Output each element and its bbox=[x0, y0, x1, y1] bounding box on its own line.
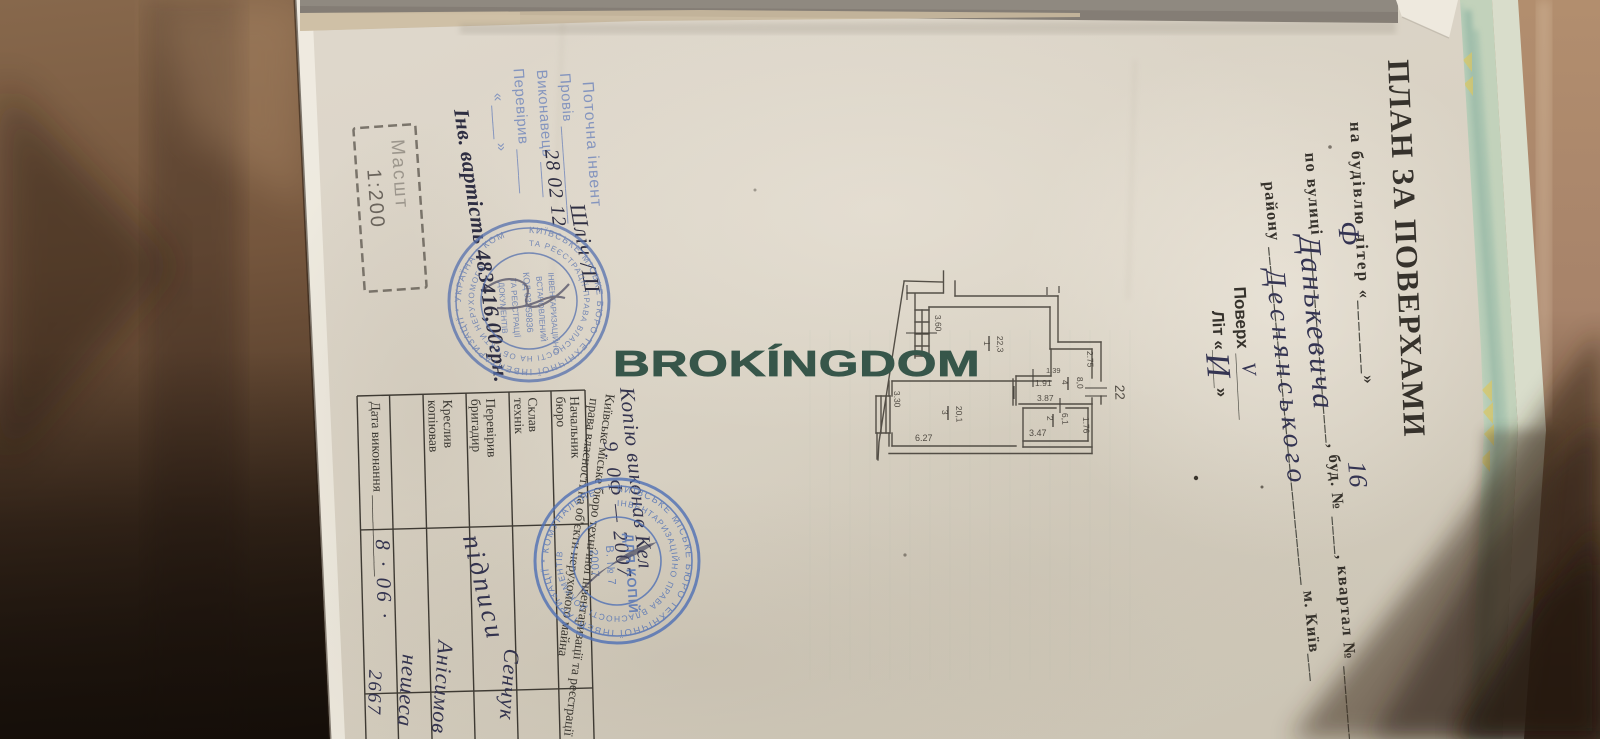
svg-text:технік: технік bbox=[511, 398, 527, 435]
svg-text:3: 3 bbox=[940, 410, 950, 415]
svg-text:Креслив: Креслив bbox=[440, 399, 456, 448]
svg-text:бюро: бюро bbox=[553, 396, 569, 427]
svg-text:Ф: Ф bbox=[1331, 220, 1366, 247]
svg-text:22: 22 bbox=[1112, 385, 1128, 401]
svg-text:В. № 7: В. № 7 bbox=[603, 545, 617, 586]
svg-text:20,1: 20,1 bbox=[954, 406, 965, 423]
svg-text:Перевірив: Перевірив bbox=[483, 398, 500, 457]
svg-text:8,0: 8,0 bbox=[1075, 377, 1085, 389]
svg-text:6.27: 6.27 bbox=[915, 433, 933, 443]
svg-text:нешеса: нешеса bbox=[393, 654, 423, 729]
svg-text:бригадир: бригадир bbox=[468, 399, 484, 453]
svg-text:16: 16 bbox=[1342, 460, 1373, 488]
svg-text:копіював: копіював bbox=[425, 400, 441, 453]
svg-text:1.76: 1.76 bbox=[1081, 417, 1092, 434]
svg-text:2.75: 2.75 bbox=[1085, 351, 1096, 368]
svg-text:1:200: 1:200 bbox=[362, 168, 388, 229]
svg-text:6,1: 6,1 bbox=[1060, 413, 1070, 425]
svg-text:3.47: 3.47 bbox=[1029, 428, 1047, 438]
svg-text:22,3: 22,3 bbox=[995, 336, 1006, 353]
svg-text:3.60: 3.60 bbox=[933, 315, 944, 332]
svg-text:BROKÍNGDOM: BROKÍNGDOM bbox=[613, 343, 980, 384]
svg-text:1: 1 bbox=[982, 341, 992, 346]
svg-text:Сенчук: Сенчук bbox=[495, 648, 525, 722]
svg-text:3.87: 3.87 bbox=[1037, 393, 1054, 403]
svg-text:8 · 06 ·: 8 · 06 · bbox=[371, 539, 397, 621]
svg-text:2: 2 bbox=[1045, 416, 1055, 421]
svg-text:1.91: 1.91 bbox=[1035, 378, 1052, 388]
svg-text:4: 4 bbox=[1060, 380, 1070, 385]
svg-text:3.30: 3.30 bbox=[892, 391, 903, 408]
svg-text:2667: 2667 bbox=[363, 670, 385, 717]
svg-text:1.39: 1.39 bbox=[1046, 366, 1061, 375]
